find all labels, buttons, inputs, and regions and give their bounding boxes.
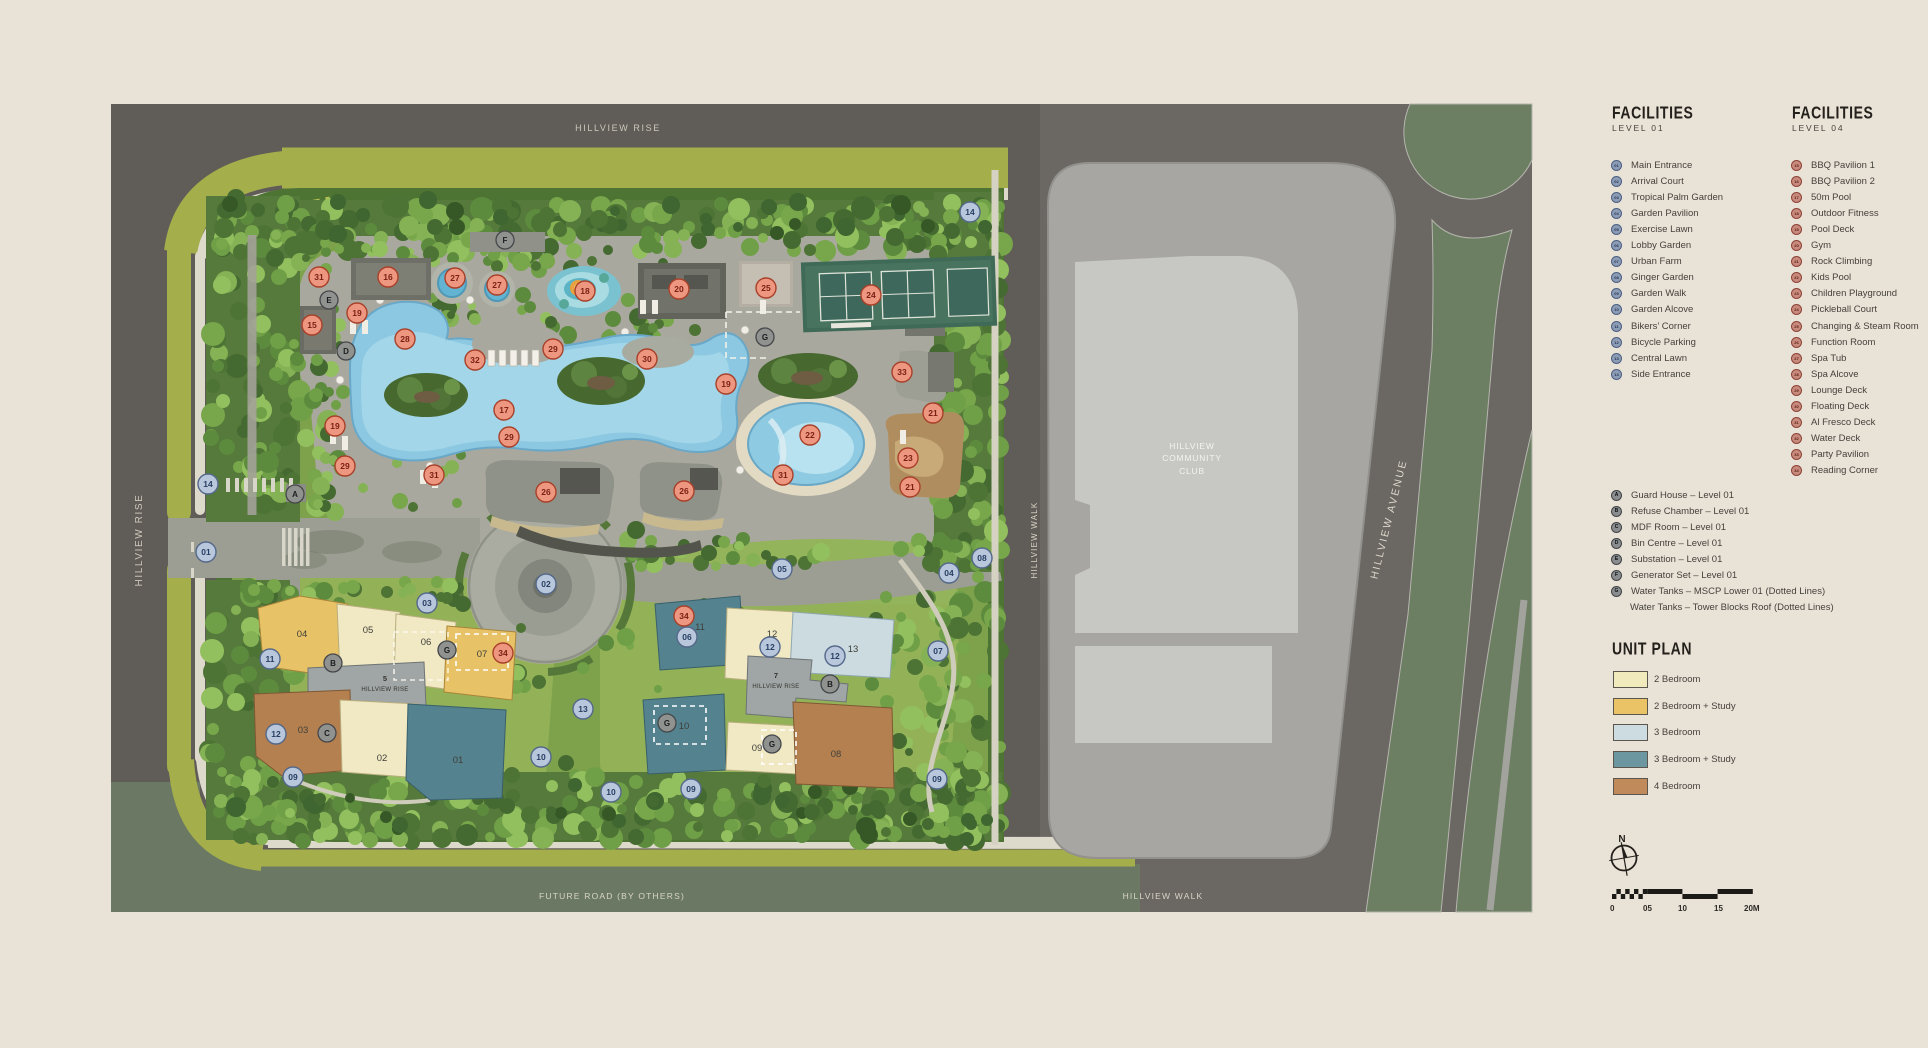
svg-text:HILLVIEW WALK: HILLVIEW WALK [1123,891,1204,901]
svg-text:12: 12 [830,651,840,661]
svg-text:32: 32 [470,355,480,365]
svg-text:HILLVIEW RISE: HILLVIEW RISE [575,123,661,133]
svg-text:19: 19 [721,379,731,389]
svg-text:17: 17 [499,405,509,415]
svg-text:01: 01 [453,755,464,766]
svg-text:16: 16 [383,272,393,282]
svg-text:29: 29 [340,461,350,471]
svg-text:25: 25 [761,283,771,293]
svg-text:10: 10 [1678,904,1687,913]
svg-text:33: 33 [897,367,907,377]
svg-text:31: 31 [429,470,439,480]
svg-text:15: 15 [1714,904,1723,913]
svg-text:B: B [330,659,336,668]
svg-text:E: E [326,296,332,305]
svg-text:03: 03 [422,598,432,608]
svg-text:13: 13 [578,704,588,714]
svg-text:27: 27 [492,280,502,290]
svg-text:02: 02 [377,753,388,764]
svg-text:09: 09 [686,784,696,794]
svg-text:18: 18 [580,286,590,296]
svg-text:11: 11 [266,654,275,664]
svg-text:15: 15 [307,320,317,330]
svg-text:29: 29 [504,432,514,442]
svg-text:G: G [769,740,775,749]
svg-text:14: 14 [965,207,975,217]
svg-text:FUTURE ROAD (BY OTHERS): FUTURE ROAD (BY OTHERS) [539,891,685,901]
svg-text:19: 19 [352,308,362,318]
svg-text:26: 26 [679,486,689,496]
svg-text:05: 05 [1643,904,1652,913]
svg-text:B: B [827,680,833,689]
svg-text:A: A [292,490,298,499]
svg-text:D: D [343,347,349,356]
svg-text:20M: 20M [1744,904,1760,913]
svg-text:09: 09 [288,772,298,782]
svg-text:30: 30 [642,354,652,364]
svg-text:21: 21 [905,482,915,492]
svg-text:G: G [762,333,768,342]
svg-text:10: 10 [679,721,690,732]
svg-text:G: G [444,646,450,655]
svg-text:20: 20 [674,284,684,294]
svg-text:5: 5 [383,674,387,683]
svg-text:26: 26 [541,487,551,497]
svg-text:12: 12 [271,729,281,739]
svg-text:10: 10 [536,752,546,762]
svg-text:04: 04 [944,568,954,578]
svg-text:29: 29 [548,344,558,354]
svg-text:09: 09 [932,774,942,784]
svg-text:0: 0 [1610,904,1615,913]
svg-text:04: 04 [297,629,308,640]
svg-text:34: 34 [498,648,508,658]
svg-text:08: 08 [831,749,842,760]
svg-text:10: 10 [606,787,616,797]
svg-text:01: 01 [201,547,211,557]
svg-text:13: 13 [848,644,859,655]
svg-text:7: 7 [774,671,778,680]
svg-text:12: 12 [765,642,775,652]
svg-text:09: 09 [752,743,763,754]
svg-text:C: C [324,729,330,738]
svg-text:G: G [664,719,670,728]
svg-text:06: 06 [421,637,432,648]
svg-text:31: 31 [314,272,324,282]
svg-text:COMMUNITY: COMMUNITY [1162,453,1222,463]
svg-text:HILLVIEW WALK: HILLVIEW WALK [1030,502,1039,579]
svg-text:11: 11 [695,622,705,633]
svg-text:F: F [503,236,508,245]
svg-text:23: 23 [903,453,913,463]
svg-text:14: 14 [203,479,213,489]
svg-text:34: 34 [679,611,689,621]
svg-text:24: 24 [866,290,876,300]
svg-text:07: 07 [933,646,943,656]
svg-text:31: 31 [778,470,788,480]
svg-text:CLUB: CLUB [1179,466,1205,476]
svg-text:08: 08 [977,553,987,563]
svg-text:07: 07 [477,649,488,660]
svg-text:21: 21 [928,408,938,418]
svg-text:05: 05 [777,564,787,574]
svg-text:HILLVIEW RISE: HILLVIEW RISE [134,494,145,587]
svg-text:19: 19 [330,421,340,431]
svg-text:27: 27 [450,273,460,283]
svg-text:06: 06 [682,632,692,642]
svg-text:02: 02 [541,579,551,589]
svg-text:HILLVIEW RISE: HILLVIEW RISE [752,684,799,690]
svg-text:28: 28 [400,334,410,344]
svg-text:05: 05 [363,625,374,636]
svg-text:HILLVIEW: HILLVIEW [1169,441,1214,451]
svg-text:03: 03 [298,725,309,736]
svg-text:HILLVIEW RISE: HILLVIEW RISE [361,687,408,693]
svg-text:22: 22 [805,430,815,440]
